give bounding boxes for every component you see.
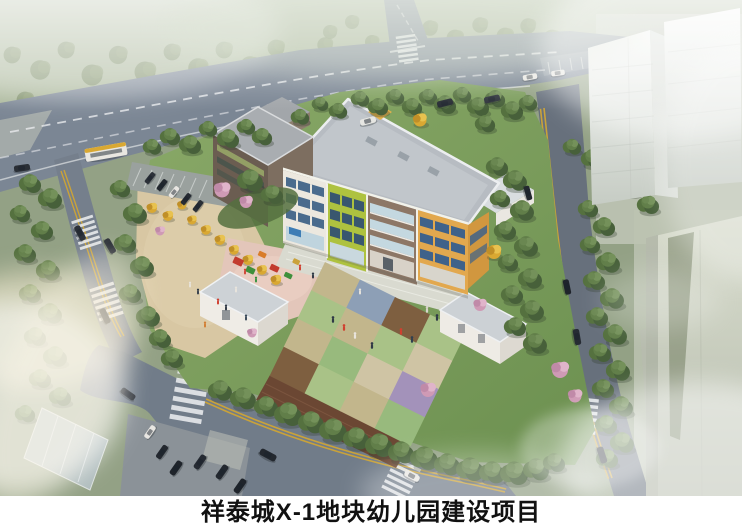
screenshot: 祥泰城X-1地块幼儿园建设项目	[0, 0, 742, 529]
caption-bar: 祥泰城X-1地块幼儿园建设项目	[0, 496, 742, 529]
site-plan-rendering	[0, 0, 742, 496]
project-title: 祥泰城X-1地块幼儿园建设项目	[201, 501, 541, 525]
